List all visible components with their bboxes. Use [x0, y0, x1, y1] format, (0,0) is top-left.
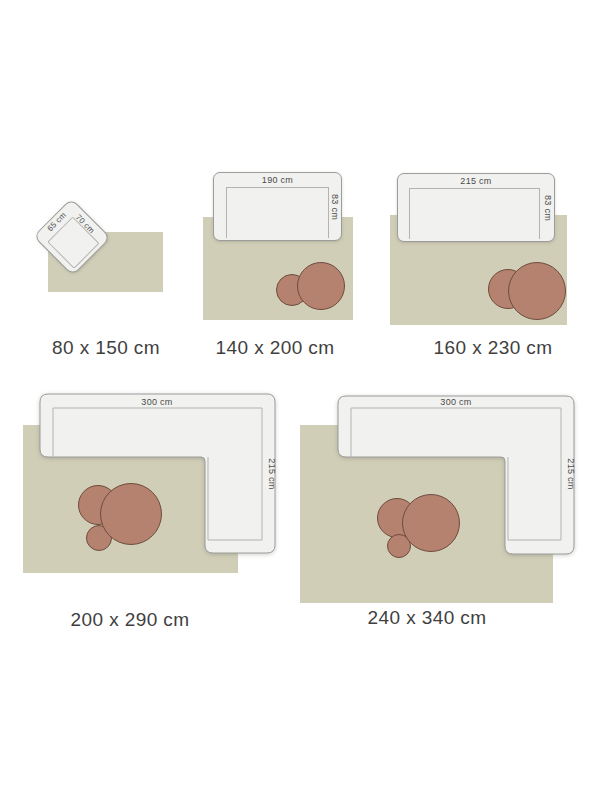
width-dimension-label: 300 cm	[440, 397, 471, 407]
pouf-circle-large	[508, 262, 566, 320]
size-diagram-240x340: 300 cm 215 cm 240 x 340 cm	[300, 390, 585, 628]
width-dimension-label: 215 cm	[398, 177, 554, 186]
depth-dimension-label: 215 cm	[267, 458, 277, 489]
sofa-top-view: 190 cm 83 cm	[213, 172, 342, 241]
size-caption: 80 x 150 cm	[16, 338, 196, 357]
size-diagram-140x200: 190 cm 83 cm 140 x 200 cm	[185, 170, 365, 360]
size-diagram-200x290: 300 cm 215 cm 200 x 290 cm	[20, 390, 280, 630]
sofa-seat	[226, 187, 329, 238]
size-caption: 200 x 290 cm	[40, 610, 220, 629]
depth-dimension-label: 215 cm	[566, 458, 576, 489]
width-dimension-label: 190 cm	[214, 176, 341, 185]
pouf-circle-large	[297, 262, 345, 310]
sofa-top-view: 215 cm 83 cm	[397, 173, 555, 242]
pouf-circle-large	[100, 483, 162, 545]
depth-dimension-label: 83 cm	[543, 194, 552, 220]
size-caption: 240 x 340 cm	[337, 608, 517, 627]
pouf-circle-large	[402, 494, 460, 552]
size-diagram-80x150: 65 cm 70 cm 80 x 150 cm	[16, 200, 196, 360]
sofa-seat	[409, 188, 540, 239]
depth-dimension-label: 83 cm	[330, 193, 339, 219]
rug-size-guide: 65 cm 70 cm 80 x 150 cm 190 cm 83 cm 140…	[0, 0, 600, 800]
size-caption: 140 x 200 cm	[185, 338, 365, 357]
size-diagram-160x230: 215 cm 83 cm 160 x 230 cm	[385, 170, 575, 360]
corner-sofa-top-view: 300 cm 215 cm	[330, 390, 585, 565]
size-caption: 160 x 230 cm	[403, 338, 583, 357]
width-dimension-label: 300 cm	[141, 397, 172, 407]
